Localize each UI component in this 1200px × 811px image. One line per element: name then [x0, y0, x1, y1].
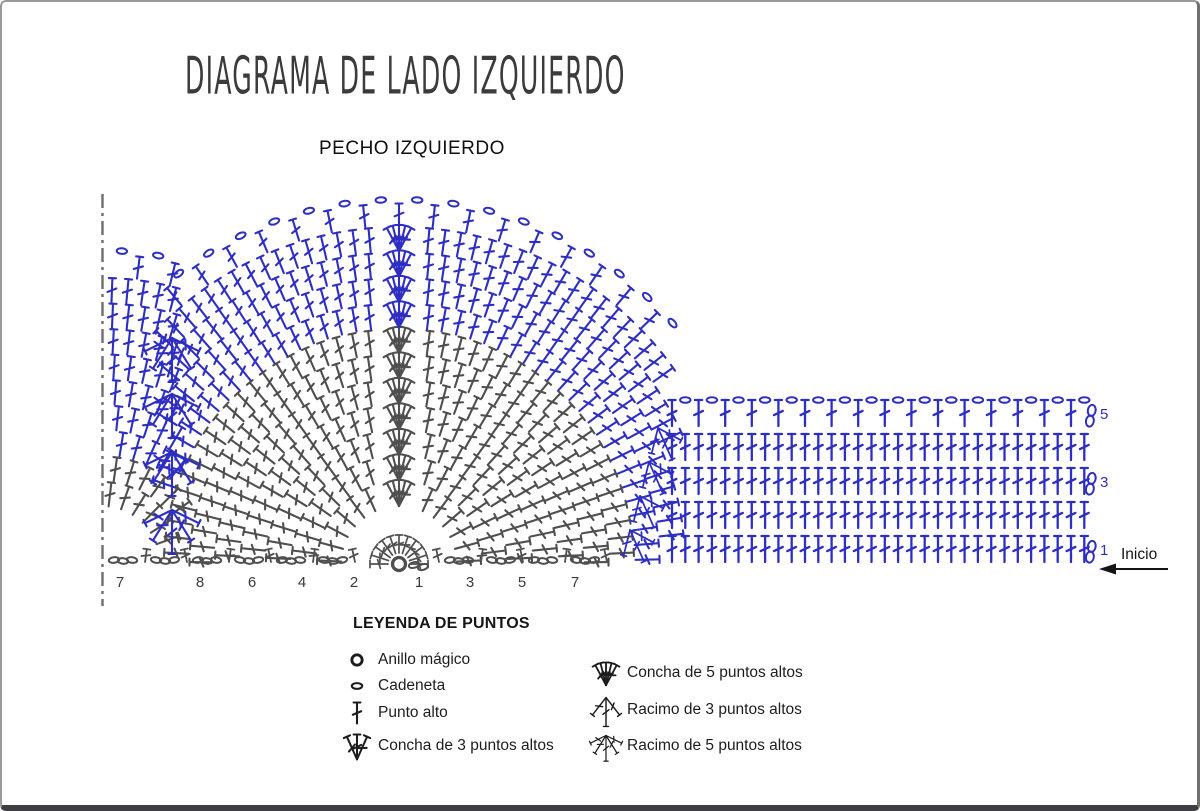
- dc: [347, 412, 363, 438]
- shell-5dc: [383, 429, 415, 457]
- dc: [364, 228, 375, 253]
- dc: [440, 507, 464, 529]
- dc: [854, 536, 863, 562]
- dc: [267, 537, 292, 550]
- dc: [522, 311, 541, 336]
- dc: [422, 356, 434, 381]
- dc: [651, 364, 676, 385]
- dc: [880, 400, 889, 426]
- dc: [592, 370, 616, 393]
- dc: [228, 269, 248, 294]
- dc: [235, 472, 260, 491]
- dc: [449, 417, 467, 443]
- dc: [576, 392, 600, 414]
- dc: [232, 359, 254, 383]
- dc: [774, 468, 783, 494]
- dc: [747, 400, 756, 426]
- dc: [348, 333, 361, 358]
- dc: [934, 536, 943, 562]
- dc: [520, 340, 540, 365]
- chain: [448, 200, 459, 207]
- dc: [987, 502, 996, 528]
- row-numbers: 786421357: [116, 574, 579, 591]
- dc: [437, 281, 450, 306]
- dc: [117, 485, 133, 511]
- dc: [246, 380, 268, 404]
- dc: [347, 385, 362, 410]
- dc: [545, 436, 570, 457]
- dc: [639, 309, 661, 331]
- dc: [395, 535, 404, 553]
- dc: [960, 434, 969, 460]
- dc: [259, 370, 280, 395]
- chain: [787, 397, 797, 403]
- dc: [303, 433, 324, 458]
- dc: [619, 409, 644, 429]
- dc: [1027, 434, 1036, 460]
- dc: [137, 306, 150, 331]
- dc: [605, 733, 623, 745]
- dc: [774, 536, 783, 562]
- dc: [466, 314, 482, 340]
- dc: [1067, 468, 1076, 494]
- dc: [319, 538, 344, 553]
- dc: [242, 290, 261, 315]
- dc: [920, 536, 929, 562]
- dc: [551, 402, 575, 425]
- dc: [734, 434, 743, 460]
- dc: [787, 536, 796, 562]
- dc: [176, 306, 198, 330]
- dc: [257, 283, 276, 308]
- dc: [521, 445, 545, 467]
- dc: [364, 330, 376, 355]
- inicio-arrow: Inicio: [1099, 546, 1168, 575]
- dc: [505, 361, 525, 386]
- chain: [518, 217, 530, 226]
- dc: [115, 432, 128, 457]
- label: 2: [350, 574, 358, 591]
- dc: [195, 509, 220, 523]
- dc: [420, 460, 436, 486]
- dc: [223, 502, 249, 518]
- dc: [452, 284, 466, 309]
- dc: [594, 418, 619, 439]
- dc: [422, 408, 435, 433]
- dc: [947, 502, 956, 528]
- dc: [934, 400, 943, 426]
- dc: [643, 400, 668, 420]
- dc: [586, 264, 606, 287]
- chain: [733, 397, 743, 403]
- dc: [734, 468, 743, 494]
- dc: [496, 504, 521, 522]
- label: 1: [1100, 542, 1108, 559]
- dc: [974, 502, 983, 528]
- dc: [364, 254, 375, 279]
- dc: [290, 443, 313, 467]
- dc: [894, 536, 903, 562]
- dc: [481, 476, 505, 498]
- dc: [216, 534, 241, 546]
- dc: [1013, 468, 1022, 494]
- chain: [1079, 397, 1089, 403]
- dc: [681, 502, 690, 528]
- dc: [331, 445, 350, 470]
- dc: [610, 395, 635, 416]
- dc: [1067, 502, 1076, 528]
- dc: [223, 245, 241, 269]
- dc: [332, 336, 347, 361]
- dc: [495, 218, 510, 242]
- dc: [271, 520, 297, 536]
- dc: [1040, 434, 1049, 460]
- dc: [613, 285, 634, 308]
- shell-5dc: [383, 327, 415, 355]
- dc: [203, 317, 225, 341]
- dc: [104, 482, 116, 507]
- dc: [761, 434, 770, 460]
- chain: [153, 252, 164, 259]
- dc: [137, 281, 149, 306]
- dc: [478, 529, 504, 544]
- dc: [867, 434, 876, 460]
- dc: [947, 468, 956, 494]
- dc: [1027, 468, 1036, 494]
- dc: [332, 258, 345, 283]
- dc: [880, 536, 889, 562]
- dc: [422, 330, 434, 355]
- dc: [561, 549, 572, 563]
- label: 6: [248, 574, 256, 591]
- chain: [339, 200, 350, 207]
- dc: [252, 496, 278, 514]
- dc: [137, 332, 150, 357]
- dc: [597, 484, 623, 500]
- dc: [141, 549, 152, 563]
- dc: [987, 468, 996, 494]
- dc: [467, 261, 482, 286]
- dc: [193, 359, 216, 382]
- legend-item-label: Racimo de 5 puntos altos: [627, 737, 802, 755]
- dc: [708, 468, 717, 494]
- dc: [129, 435, 144, 461]
- dc: [880, 502, 889, 528]
- dc: [228, 487, 254, 505]
- chain: [483, 207, 494, 215]
- chain: [203, 248, 215, 258]
- dc: [108, 329, 118, 353]
- dc: [602, 432, 627, 452]
- legend-item-label: Punto alto: [378, 704, 448, 722]
- dc: [537, 262, 556, 287]
- dc: [581, 359, 604, 382]
- dc: [190, 541, 215, 552]
- dc: [841, 434, 850, 460]
- dc: [151, 283, 165, 308]
- chain: [551, 231, 563, 241]
- dc: [348, 281, 361, 306]
- dc: [510, 249, 527, 275]
- dc: [135, 466, 154, 491]
- dc: [438, 255, 450, 280]
- label: 5: [518, 574, 526, 591]
- dc: [536, 423, 560, 445]
- dc: [607, 349, 631, 372]
- dc: [436, 385, 451, 410]
- chain: [680, 397, 690, 403]
- dc: [241, 544, 266, 555]
- dc: [960, 536, 969, 562]
- dc: [642, 351, 666, 373]
- dc: [801, 502, 810, 528]
- dc: [668, 536, 677, 562]
- dc: [437, 333, 450, 358]
- dc: [370, 551, 390, 565]
- dc: [721, 434, 730, 460]
- dc: [1053, 502, 1062, 528]
- shell-5dc: [592, 662, 620, 687]
- dc: [295, 529, 321, 544]
- dc: [564, 277, 584, 302]
- dc: [419, 487, 437, 513]
- dc: [1080, 434, 1089, 460]
- dc: [205, 348, 228, 372]
- dc: [947, 434, 956, 460]
- dc: [592, 469, 618, 486]
- dc: [601, 383, 625, 405]
- dc: [526, 511, 552, 527]
- dc: [814, 468, 823, 494]
- dc: [255, 230, 272, 254]
- dc: [920, 502, 929, 528]
- dc: [774, 502, 783, 528]
- dc: [987, 400, 996, 426]
- shell-5dc: [383, 276, 415, 304]
- chain: [813, 397, 823, 403]
- dc: [596, 338, 619, 361]
- dc: [496, 244, 512, 270]
- dc: [544, 487, 570, 505]
- chain: [760, 397, 770, 403]
- dc: [286, 298, 303, 324]
- center-fan: [151, 197, 684, 571]
- label: 8: [196, 574, 204, 591]
- dc: [332, 475, 353, 500]
- label: 3: [466, 574, 474, 591]
- dc: [478, 375, 497, 400]
- dc: [787, 502, 796, 528]
- dc: [305, 464, 328, 488]
- dc: [423, 228, 434, 253]
- chain: [235, 231, 247, 241]
- dc: [437, 307, 450, 332]
- dc: [534, 319, 554, 344]
- dc: [316, 341, 332, 367]
- dc: [398, 535, 412, 555]
- dc: [465, 499, 490, 520]
- dc: [907, 502, 916, 528]
- dc: [1013, 502, 1022, 528]
- dc: [761, 468, 770, 494]
- chain: [946, 397, 956, 403]
- dc: [1040, 400, 1049, 426]
- dc: [1027, 536, 1036, 562]
- dc: [432, 548, 443, 563]
- chain: [707, 397, 717, 403]
- dc: [331, 417, 349, 443]
- dc: [122, 279, 133, 304]
- label: 3: [1100, 474, 1108, 491]
- dc: [787, 468, 796, 494]
- dc: [635, 555, 659, 564]
- dc: [273, 361, 293, 386]
- dc: [166, 262, 180, 285]
- dc: [361, 487, 379, 513]
- dc: [1067, 536, 1076, 562]
- dc: [508, 304, 526, 329]
- dc: [557, 534, 582, 546]
- dc: [694, 502, 703, 528]
- dc: [632, 339, 656, 361]
- dc: [435, 412, 451, 438]
- dc: [761, 502, 770, 528]
- dc: [332, 310, 346, 335]
- dc: [505, 467, 530, 488]
- dc: [452, 258, 465, 283]
- dc: [894, 502, 903, 528]
- dc: [574, 493, 600, 509]
- shell-3dc: [343, 735, 371, 762]
- dc: [123, 330, 135, 355]
- dc: [284, 490, 309, 510]
- dc: [761, 536, 770, 562]
- dc: [256, 255, 274, 280]
- dc: [492, 353, 511, 378]
- dc: [332, 284, 346, 309]
- dc: [610, 446, 635, 464]
- dc: [854, 468, 863, 494]
- dc: [947, 536, 956, 562]
- dc: [570, 427, 595, 448]
- turning-chain: [1085, 472, 1097, 495]
- dc: [438, 230, 450, 255]
- dc: [192, 264, 212, 287]
- shell-5dc: [383, 378, 415, 406]
- dc: [110, 380, 121, 405]
- dc: [274, 391, 295, 416]
- dc: [561, 463, 586, 482]
- dc: [630, 507, 655, 520]
- dc: [551, 269, 571, 294]
- dc: [867, 502, 876, 528]
- chain: [613, 268, 625, 279]
- dc: [422, 382, 435, 407]
- dc: [854, 434, 863, 460]
- dc: [220, 369, 243, 393]
- dc: [300, 513, 325, 531]
- dc: [287, 353, 306, 378]
- dc: [195, 440, 220, 460]
- dc: [934, 502, 943, 528]
- dc: [801, 536, 810, 562]
- dc: [423, 305, 435, 330]
- dc: [506, 537, 531, 550]
- dc: [133, 256, 144, 279]
- dc: [472, 513, 497, 531]
- dc: [907, 434, 916, 460]
- turning-chain: [1085, 404, 1097, 427]
- dc: [347, 359, 361, 384]
- shell-5dc: [383, 352, 415, 380]
- dc: [523, 283, 542, 308]
- dc: [395, 204, 404, 226]
- dc: [1040, 502, 1049, 528]
- dc: [566, 380, 589, 403]
- dc: [245, 349, 266, 374]
- dc: [302, 403, 322, 428]
- dc: [286, 271, 303, 297]
- dc: [520, 496, 546, 514]
- dc: [286, 244, 302, 270]
- dc: [272, 332, 291, 357]
- dc: [261, 401, 283, 425]
- dc: [316, 368, 333, 394]
- dc: [348, 307, 361, 332]
- dc: [527, 230, 544, 254]
- dc: [491, 382, 511, 407]
- dc: [287, 382, 307, 407]
- label: 4: [298, 574, 306, 591]
- dc: [166, 313, 181, 339]
- dc: [734, 502, 743, 528]
- dc: [854, 502, 863, 528]
- dc: [622, 328, 645, 351]
- dc: [301, 347, 319, 373]
- dc: [787, 434, 796, 460]
- dc: [550, 502, 576, 518]
- dc: [481, 266, 497, 292]
- dc: [1013, 536, 1022, 562]
- label: 1: [415, 574, 423, 591]
- dc: [332, 363, 348, 389]
- dc: [456, 486, 479, 509]
- dc: [317, 261, 332, 286]
- dc: [211, 463, 236, 482]
- dc: [681, 536, 690, 562]
- dc: [867, 536, 876, 562]
- dc: [286, 325, 304, 350]
- dc: [920, 434, 929, 460]
- dc: [694, 536, 703, 562]
- dc: [987, 536, 996, 562]
- dc: [214, 277, 234, 302]
- dc: [536, 290, 555, 315]
- dc: [249, 411, 272, 434]
- dc: [1000, 502, 1009, 528]
- dc: [467, 235, 481, 260]
- shell-5dc: [383, 301, 415, 329]
- dc: [616, 460, 642, 477]
- dc: [694, 400, 703, 426]
- dc: [348, 230, 360, 255]
- dc: [153, 418, 171, 443]
- dc: [316, 314, 332, 340]
- chain: [641, 291, 652, 302]
- dc: [215, 307, 236, 332]
- dc: [907, 468, 916, 494]
- dc: [841, 536, 850, 562]
